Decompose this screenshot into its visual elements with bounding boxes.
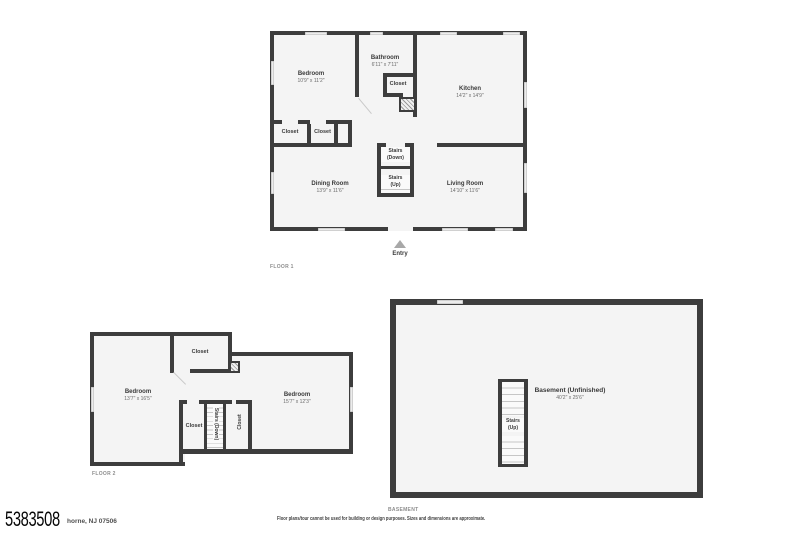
room-name: Bedroom [257,391,337,399]
floorplan-page: Bedroom 10'9" x 11'2" Bathroom 6'11" x 7… [0,0,800,533]
room-name: Basement (Unfinished) [500,387,640,395]
room-label-stairs-down: Stairs (Down) [213,407,219,441]
wall [90,332,232,336]
wall [228,352,353,356]
room-label-closet-bottom: Closet [182,423,206,430]
room-label-stairs-up: Stairs (Up) [502,418,524,432]
stairs-line1: Stairs [506,418,520,424]
wall [334,124,338,143]
wall [697,299,703,498]
wall [90,462,185,466]
wall [179,400,187,404]
stair-treads [502,436,524,464]
listing-number: 5383508 [5,508,60,532]
entry-arrow-icon [394,240,406,248]
room-name: Living Room [430,180,500,188]
room-label-bedroom: Bedroom 10'9" x 11'2" [278,70,344,85]
room-dims: 10'9" x 11'2" [278,78,344,85]
room-label-stairs-down: Stairs (Down) [381,148,410,162]
wall [190,369,232,373]
room-label-bedroom-left: Bedroom 13'7" x 16'5" [98,388,178,403]
floor2-plan: Closet Bedroom 13'7" x 16'5" Bedroom 15'… [90,332,353,466]
wall [390,299,396,498]
address-text: horne, NJ 07506 [67,518,117,525]
wall [498,464,528,467]
window [495,228,513,231]
wall [377,143,386,147]
wall [223,400,226,449]
window [271,61,274,85]
disclaimer-text: Floor plans/tour cannot be used for buil… [277,516,485,522]
room-name: Kitchen [435,85,505,93]
room-label-bedroom-right: Bedroom 15'7" x 12'3" [257,391,337,406]
wall [179,449,353,454]
window [370,32,383,35]
stairs-line2: (Down) [387,155,404,161]
wall [179,400,183,466]
basement-plan: Stairs (Up) Basement (Unfinished) 40'2" … [390,299,703,498]
stairs-line2: (Up) [391,182,401,188]
wall [390,492,703,498]
floor2-tag: FLOOR 2 [92,471,116,477]
window [305,32,327,35]
window [503,32,520,35]
room-label-bath-closet: Closet [382,81,414,88]
room-label-living: Living Room 14'10" x 11'6" [430,180,500,195]
room-dims: 13'9" x 11'6" [295,188,365,195]
stairs-line1: Stairs [389,148,403,154]
wall [274,120,282,124]
window [524,82,527,108]
room-label-closet-b: Closet [311,129,334,136]
window [524,163,527,193]
floor1-tag: FLOOR 1 [270,264,294,270]
utility-hatch-fixture [229,361,240,373]
wall [383,73,413,77]
room-dims: 13'7" x 16'5" [98,396,178,403]
utility-hatch-fixture [399,97,416,112]
room-label-dining: Dining Room 13'9" x 11'6" [295,180,365,195]
wall [498,379,528,382]
room-label-kitchen: Kitchen 14'2" x 14'9" [435,85,505,100]
room-label-closet-side: Closet [237,413,243,430]
wall [377,193,414,197]
room-label-stairs-up: Stairs (Up) [381,175,410,189]
room-label-bathroom: Bathroom 6'11" x 7'11" [358,54,412,69]
room-dims: 40'2" x 25'6" [500,395,640,402]
wall [270,143,352,147]
wall [348,124,352,143]
wall [405,143,414,147]
room-name: Dining Room [295,180,365,188]
room-name: Bedroom [278,70,344,78]
room-dims: 14'10" x 11'6" [430,188,500,195]
room-dims: 6'11" x 7'11" [358,62,412,69]
room-dims: 14'2" x 14'9" [435,93,505,100]
entry-label: Entry [374,251,426,257]
window [440,32,457,35]
basement-tag: BASEMENT [388,507,418,513]
room-name: Bedroom [98,388,178,396]
room-name: Bathroom [358,54,412,62]
room-dims: 15'7" x 12'3" [257,399,337,406]
room-label-closet-top: Closet [172,349,228,356]
room-label-closet-a: Closet [273,129,307,136]
wall [381,166,410,169]
window [350,387,353,412]
window [91,387,94,412]
wall [523,31,527,231]
wall [437,143,527,147]
window [437,300,463,304]
stairs-line1: Stairs [389,175,403,181]
room-label-basement: Basement (Unfinished) 40'2" x 25'6" [500,387,640,402]
window [271,172,274,194]
floor1-plan: Bedroom 10'9" x 11'2" Bathroom 6'11" x 7… [270,31,527,231]
wall [248,400,252,454]
stairs-line2: (Up) [508,425,518,431]
window [318,228,345,231]
wall [410,143,414,197]
window [442,228,468,231]
